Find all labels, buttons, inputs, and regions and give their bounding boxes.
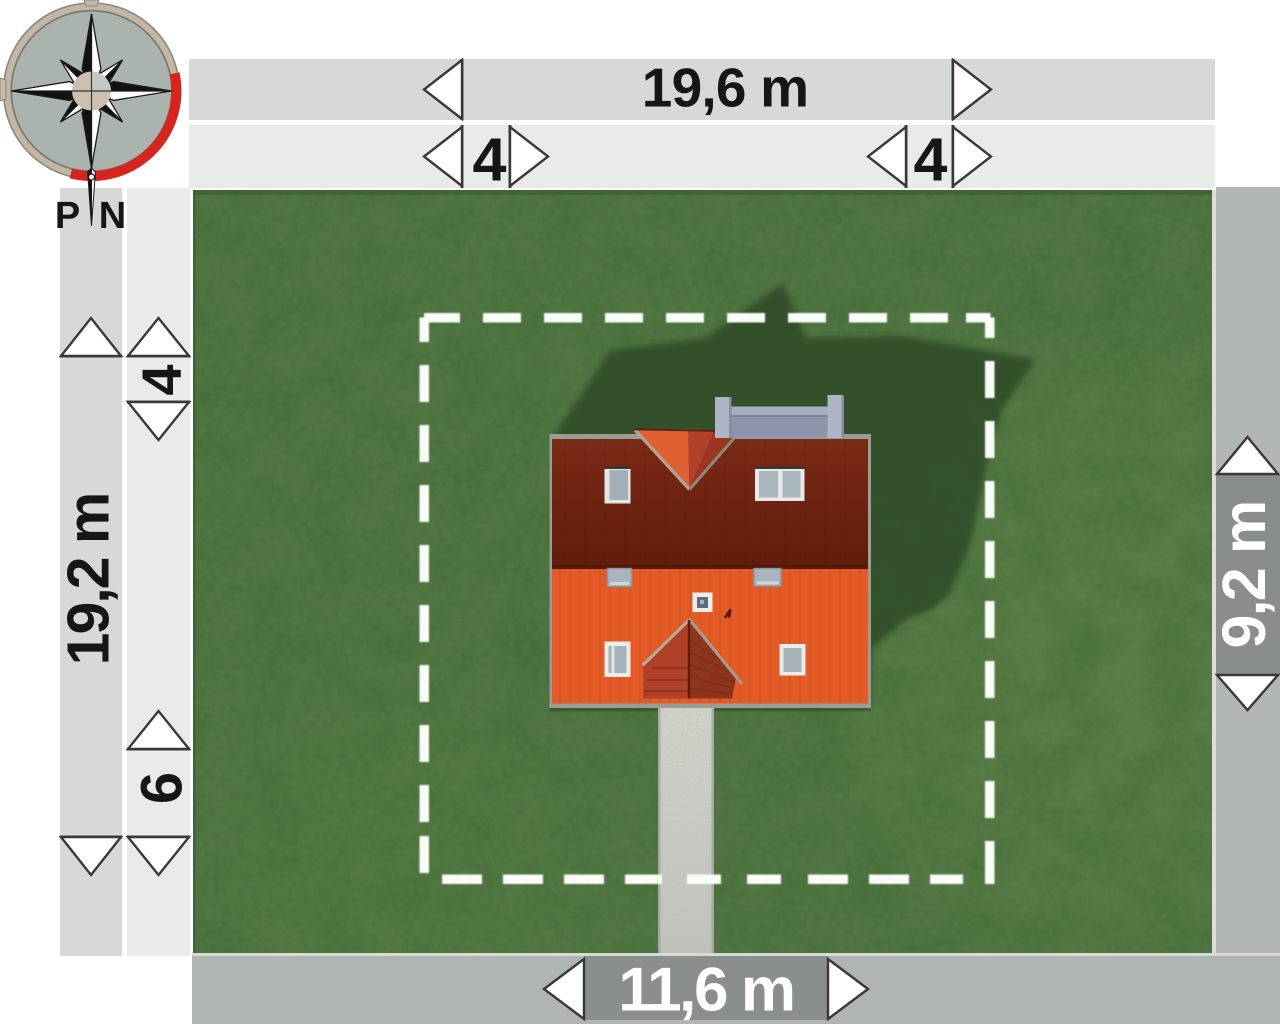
svg-text:4: 4	[130, 364, 193, 395]
svg-text:19,6 m: 19,6 m	[642, 56, 808, 118]
svg-text:4: 4	[914, 125, 948, 193]
svg-text:9,2 m: 9,2 m	[1210, 502, 1278, 649]
svg-text:P: P	[55, 195, 80, 237]
svg-text:4: 4	[473, 125, 507, 193]
svg-text:6: 6	[130, 772, 195, 804]
svg-text:N: N	[99, 195, 126, 237]
svg-text:11,6 m: 11,6 m	[618, 955, 793, 1024]
svg-text:19,2 m: 19,2 m	[56, 494, 122, 666]
